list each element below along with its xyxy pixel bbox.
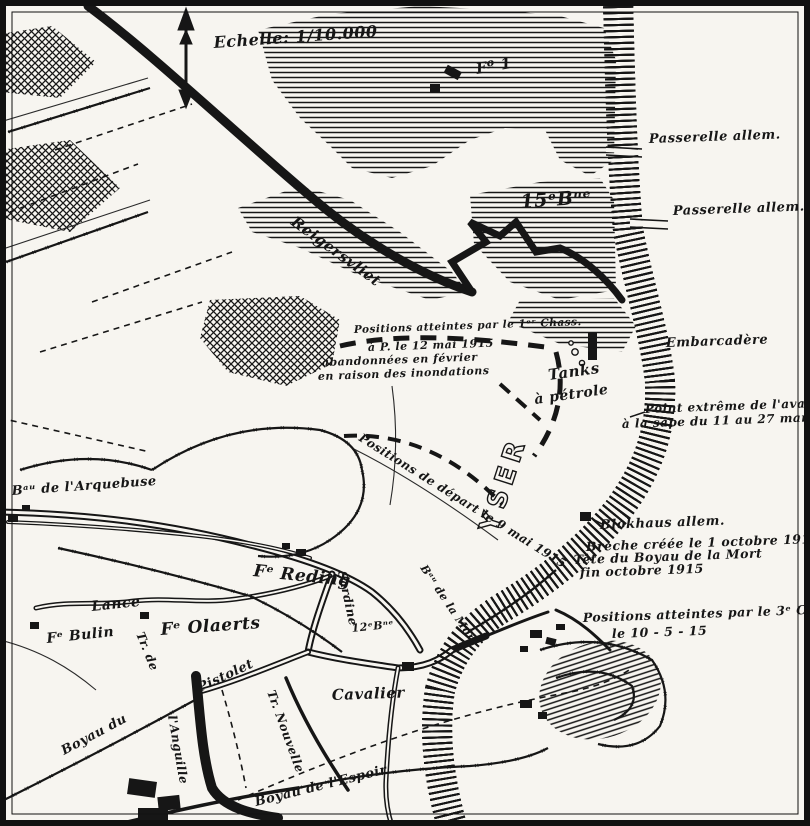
map-label-bau-mort: Bᵃᵘ de la Mort [417, 562, 481, 648]
map-label-depart: Positions de départ le 9 mai 1915 [356, 430, 570, 571]
map-label-fe-olaerts: Fᵉ Olaerts [159, 613, 261, 640]
map-label-tanks-1: Tanks [547, 359, 601, 384]
map-label-cavalier: Cavalier [332, 683, 406, 704]
map-label-tr-de: Tr. de [133, 630, 161, 673]
map-label-sardine: Sardine [335, 570, 360, 627]
map-label-lance: Lance [90, 594, 141, 615]
map-label-anguille: l'Anguille [165, 714, 191, 785]
map-label-embarcadere: Embarcadère [665, 332, 769, 351]
map-label-breche-3: fin octobre 1915 [579, 561, 704, 580]
map-label-arquebuse: Bᵃᵘ de l'Arquebuse [10, 474, 157, 499]
map-label-espoir: Boyau de l'Espoir [252, 762, 389, 810]
map-label-passerelle-2: Passerelle allem. [672, 199, 805, 219]
map-label-passerelle-1: Passerelle allem. [648, 127, 781, 147]
map-canvas: × × × × × × × × × × × × × × × × × × × × … [0, 0, 810, 826]
north-arrow-icon [178, 8, 194, 108]
map-label-pos-b-2: le 10 - 5 - 15 [612, 623, 708, 641]
map-label-tanks-2: à pétrole [533, 382, 609, 408]
map-label-pos-b-1: Positions atteintes par le 3ᵉ Chass. [582, 601, 810, 625]
map-label-tr-nouvelle: Tr. Nouvelle [264, 688, 307, 774]
map-label-blokhaus: Blokhaus allem. [599, 514, 726, 533]
trench-map: × × × × × × × × × × × × × × × × × × × × … [0, 0, 810, 826]
map-label-fe-bulin: Fᵉ Bulin [45, 624, 115, 647]
